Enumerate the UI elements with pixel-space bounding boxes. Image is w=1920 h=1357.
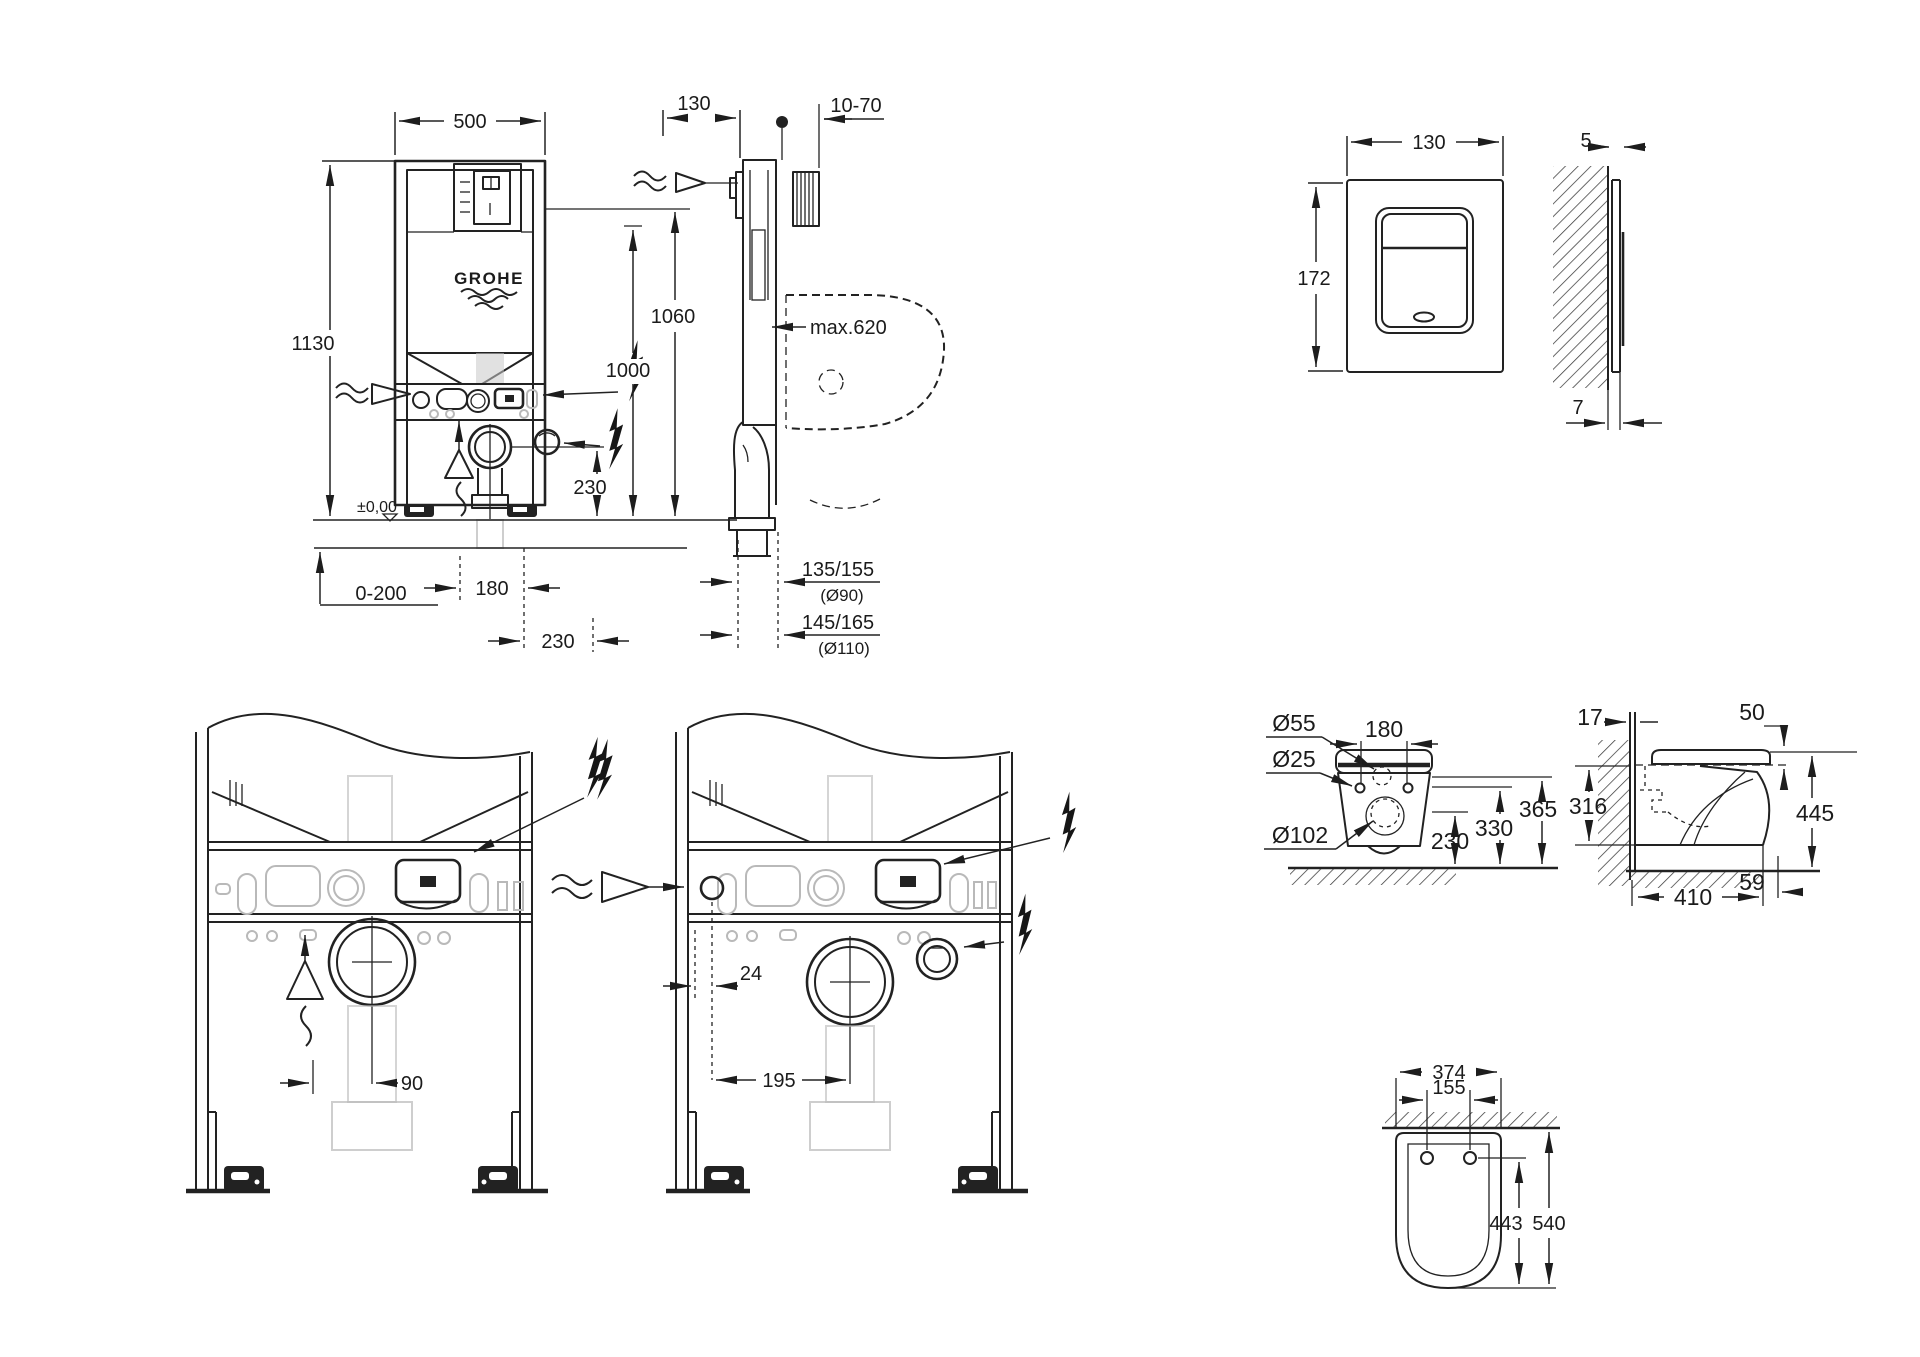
flush-plate-side-view: 5 7: [1553, 130, 1662, 430]
wc-side-view: 17 50 316 445 410 59: [1569, 699, 1857, 910]
dim-frame-depth: 130: [677, 93, 710, 115]
dim-h-bolts: 330: [1475, 815, 1513, 841]
dim-wall-gap: 10-70: [830, 95, 881, 117]
dim-base-supply-offset: 24: [740, 963, 762, 985]
frame-front-view: GROHE ±0,00: [291, 111, 737, 653]
wc-rear-view: Ø55 Ø25 Ø102 180 230 330 365: [1264, 710, 1558, 885]
dim-hole-drain: Ø102: [1272, 822, 1328, 848]
dim-depth: 410: [1674, 884, 1712, 910]
dim-outlet-b-pipe: (Ø110): [818, 639, 870, 658]
dim-drain-height: 230: [573, 477, 606, 499]
dim-outlet-b: 145/165: [802, 612, 874, 634]
dim-plate-thickness: 5: [1580, 130, 1591, 152]
dim-hole-top: Ø55: [1272, 710, 1315, 736]
power-icon: [597, 408, 632, 470]
dim-top-depth: 443: [1489, 1213, 1522, 1235]
technical-drawing-sheet: GROHE ±0,00: [0, 0, 1920, 1357]
dim-plate-width: 130: [1412, 132, 1445, 154]
brand-text: GROHE: [454, 269, 524, 288]
dim-body-height: 316: [1569, 793, 1607, 819]
dim-drain-offset: 230: [541, 631, 574, 653]
dim-floor-range: 0-200: [355, 583, 406, 605]
dim-hole-small: Ø25: [1272, 746, 1315, 772]
dim-top-bolt-spacing: 155: [1432, 1077, 1465, 1099]
corrugated-pipe: [793, 172, 819, 226]
dim-pipe-offset: 180: [475, 578, 508, 600]
installation-diagram: GROHE ±0,00: [0, 0, 1920, 1357]
dim-top-total-depth: 540: [1532, 1213, 1565, 1235]
power-icon: [1005, 893, 1041, 955]
dim-front-lip: 59: [1739, 869, 1765, 895]
dim-supply-height: 1000: [606, 360, 651, 382]
power-icon: [1049, 791, 1085, 853]
dim-h-drain: 230: [1431, 828, 1469, 854]
dim-base-drain-offset-mid: 195: [762, 1070, 795, 1092]
frame-base-middle-view: 24 195: [552, 714, 1085, 1192]
frame-side-view: 130 10-70 1060 max.620 135/155 (Ø90) 145…: [634, 93, 944, 658]
dim-bolt-spacing: 180: [1365, 716, 1403, 742]
dim-outlet-a-pipe: (Ø90): [820, 586, 863, 605]
frame-base-left-view: 90: [186, 714, 610, 1192]
dim-wall-offset: 17: [1577, 704, 1603, 730]
dim-flush-height: 1060: [651, 306, 696, 328]
dim-outlet-a: 135/155: [802, 559, 874, 581]
dim-frame-height: 1130: [291, 333, 334, 355]
water-supply-icon: [634, 172, 738, 193]
water-supply-icon: [336, 384, 410, 405]
dim-total-height: 445: [1796, 800, 1834, 826]
dim-h-top: 365: [1519, 796, 1557, 822]
dim-plate-protrusion: 7: [1572, 397, 1583, 419]
dim-frame-width: 500: [453, 111, 486, 133]
grohe-logo: GROHE: [454, 269, 524, 309]
flush-plate-front-view: 130 172: [1297, 132, 1503, 372]
dim-plate-height: 172: [1297, 268, 1330, 290]
water-supply-icon: [552, 872, 684, 902]
dim-seat-thickness: 50: [1739, 699, 1765, 725]
wc-top-view: 374 155 443 540: [1382, 1062, 1566, 1288]
dim-max-reach: max.620: [810, 317, 887, 339]
dim-base-drain-offset: 90: [401, 1073, 423, 1095]
